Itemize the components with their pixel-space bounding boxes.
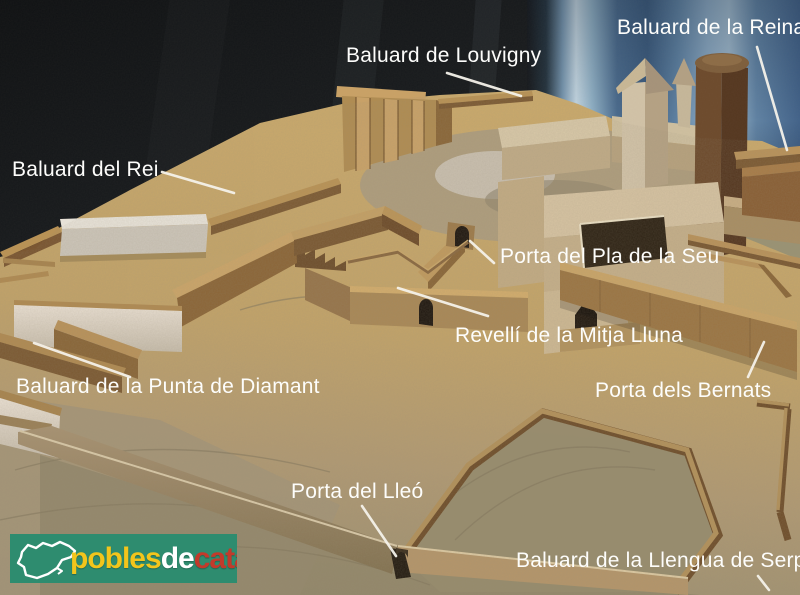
watermark-word-de: de [161,544,194,574]
watermark-word-pobles: pobles [70,544,161,574]
scene-svg [0,0,800,595]
label-baluard-de-la-reina: Baluard de la Reina [617,16,800,39]
label-porta-del-lleo: Porta del Lleó [291,480,423,503]
label-porta-del-pla-de-la-seu: Porta del Pla de la Seu [500,245,719,268]
label-baluard-de-louvigny: Baluard de Louvigny [346,44,541,67]
watermark-word-catalunya: catalunya [194,544,237,574]
label-baluard-del-rei: Baluard del Rei [12,158,159,181]
watermark-text: poblesdecatalunya [70,544,237,574]
fortress-model-photo: Baluard de la Reina Baluard de Louvigny … [0,0,800,595]
label-baluard-punta-de-diamant: Baluard de la Punta de Diamant [16,375,320,398]
label-porta-dels-bernats: Porta dels Bernats [595,379,771,402]
label-baluard-llengua-de-serp: Baluard de la Llengua de Serp [516,549,800,572]
pobles-de-catalunya-watermark: poblesdecatalunya [10,534,237,583]
label-revelli-de-la-mitja-lluna: Revellí de la Mitja Lluna [455,324,683,347]
